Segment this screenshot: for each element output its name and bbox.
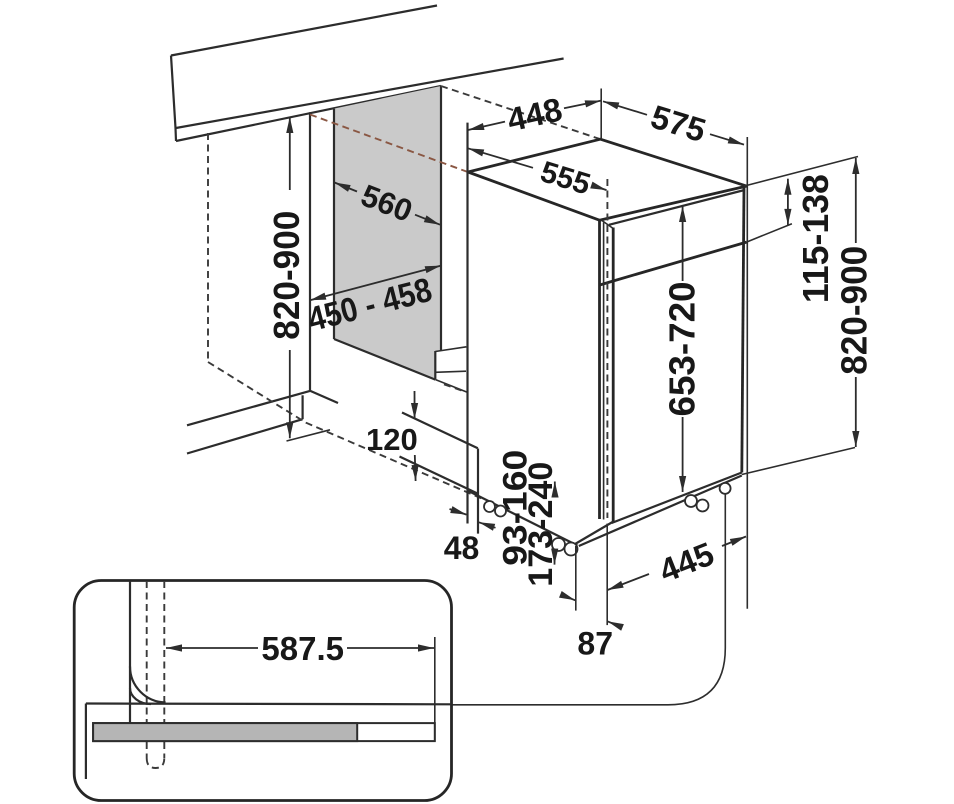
svg-text:445: 445 xyxy=(654,535,719,590)
svg-text:555: 555 xyxy=(537,155,595,201)
svg-text:820-900: 820-900 xyxy=(266,211,307,340)
svg-text:48: 48 xyxy=(444,530,480,566)
svg-text:653-720: 653-720 xyxy=(662,282,703,417)
svg-text:820-900: 820-900 xyxy=(834,246,875,375)
svg-text:448: 448 xyxy=(504,90,566,138)
svg-text:120: 120 xyxy=(366,422,418,457)
svg-text:87: 87 xyxy=(577,626,613,662)
svg-text:173-240: 173-240 xyxy=(522,462,560,587)
svg-text:115-138: 115-138 xyxy=(795,174,836,303)
svg-text:575: 575 xyxy=(647,98,710,149)
svg-text:587.5: 587.5 xyxy=(261,630,344,667)
